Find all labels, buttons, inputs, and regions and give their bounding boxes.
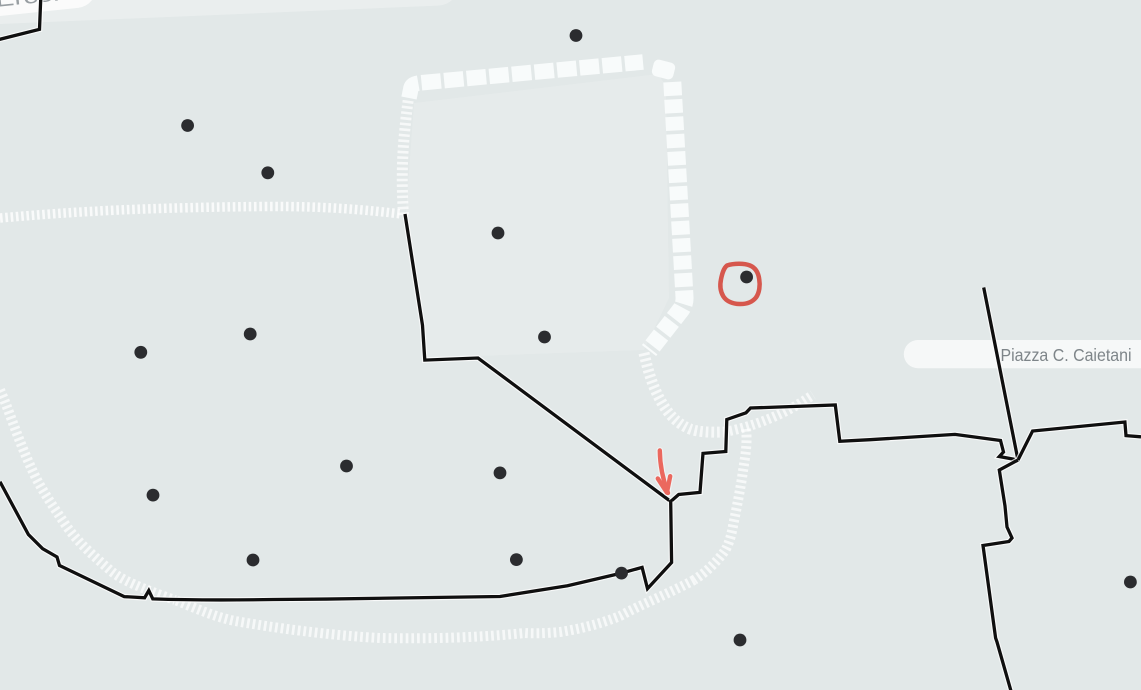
svg-text:Piazza C. Caietani: Piazza C. Caietani <box>1001 345 1132 365</box>
